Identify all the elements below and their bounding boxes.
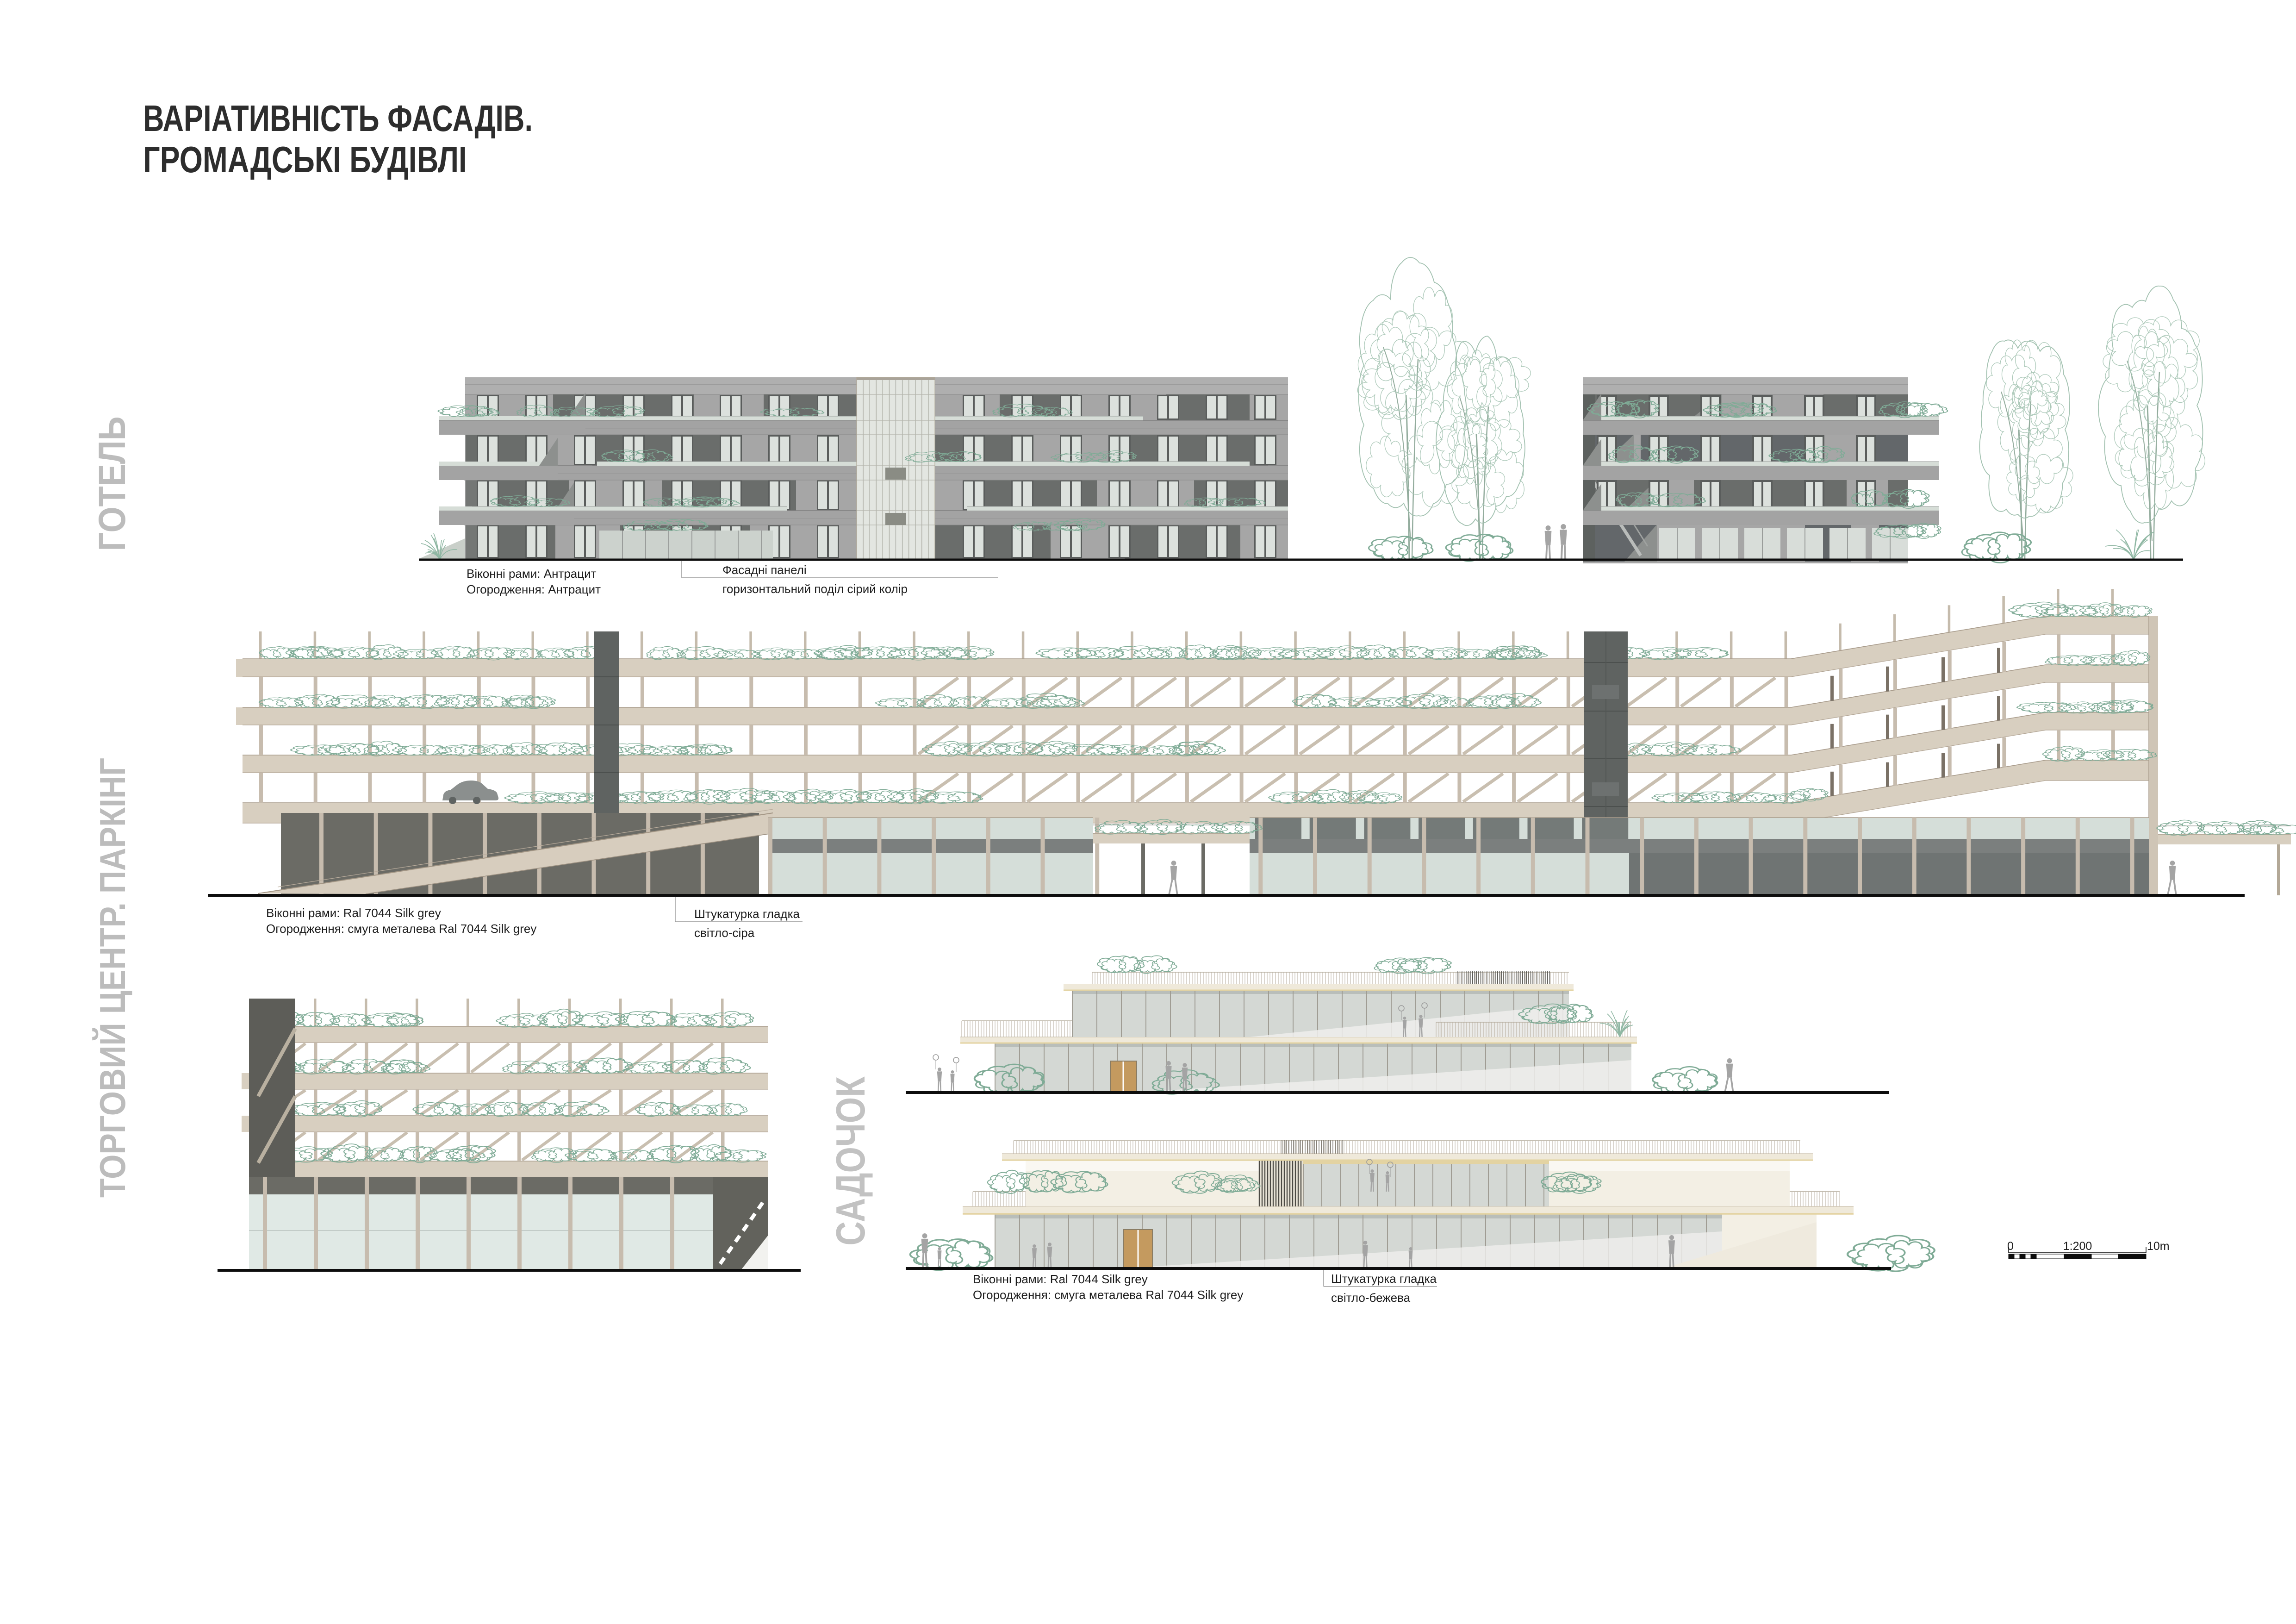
svg-text:світло-бежева: світло-бежева <box>1331 1291 1411 1305</box>
svg-text:Фасадні панелі: Фасадні панелі <box>722 563 807 577</box>
svg-text:ГОТЕЛЬ: ГОТЕЛЬ <box>91 417 133 551</box>
svg-text:САДОЧОК: САДОЧОК <box>828 1076 873 1245</box>
svg-text:Огородження: Антрацит: Огородження: Антрацит <box>467 582 601 596</box>
svg-text:Огородження: смуга металева Ra: Огородження: смуга металева Ral 7044 Sil… <box>266 922 536 936</box>
svg-text:Віконні рами: Ral 7044 Silk gr: Віконні рами: Ral 7044 Silk grey <box>973 1272 1148 1286</box>
svg-text:10m: 10m <box>2147 1240 2170 1253</box>
svg-text:1:200: 1:200 <box>2063 1240 2092 1253</box>
svg-text:Віконні рами: Ral 7044 Silk gr: Віконні рами: Ral 7044 Silk grey <box>266 906 441 920</box>
svg-text:Огородження: смуга металева Ra: Огородження: смуга металева Ral 7044 Sil… <box>973 1288 1243 1302</box>
svg-text:Віконні рами: Антрацит: Віконні рами: Антрацит <box>467 567 597 581</box>
svg-text:ТОРГОВИЙ ЦЕНТР. ПАРКІНГ: ТОРГОВИЙ ЦЕНТР. ПАРКІНГ <box>92 758 133 1198</box>
svg-text:світло-сіра: світло-сіра <box>694 926 755 940</box>
svg-text:ВАРІАТИВНІСТЬ ФАСАДІВ.: ВАРІАТИВНІСТЬ ФАСАДІВ. <box>143 98 533 139</box>
svg-text:горизонтальний поділ сірий кол: горизонтальний поділ сірий колір <box>722 582 908 596</box>
svg-text:0: 0 <box>2007 1240 2014 1253</box>
svg-text:Штукатурка гладка: Штукатурка гладка <box>1331 1272 1437 1286</box>
svg-text:Штукатурка гладка: Штукатурка гладка <box>694 907 800 921</box>
svg-text:ГРОМАДСЬКІ БУДІВЛІ: ГРОМАДСЬКІ БУДІВЛІ <box>143 139 467 180</box>
